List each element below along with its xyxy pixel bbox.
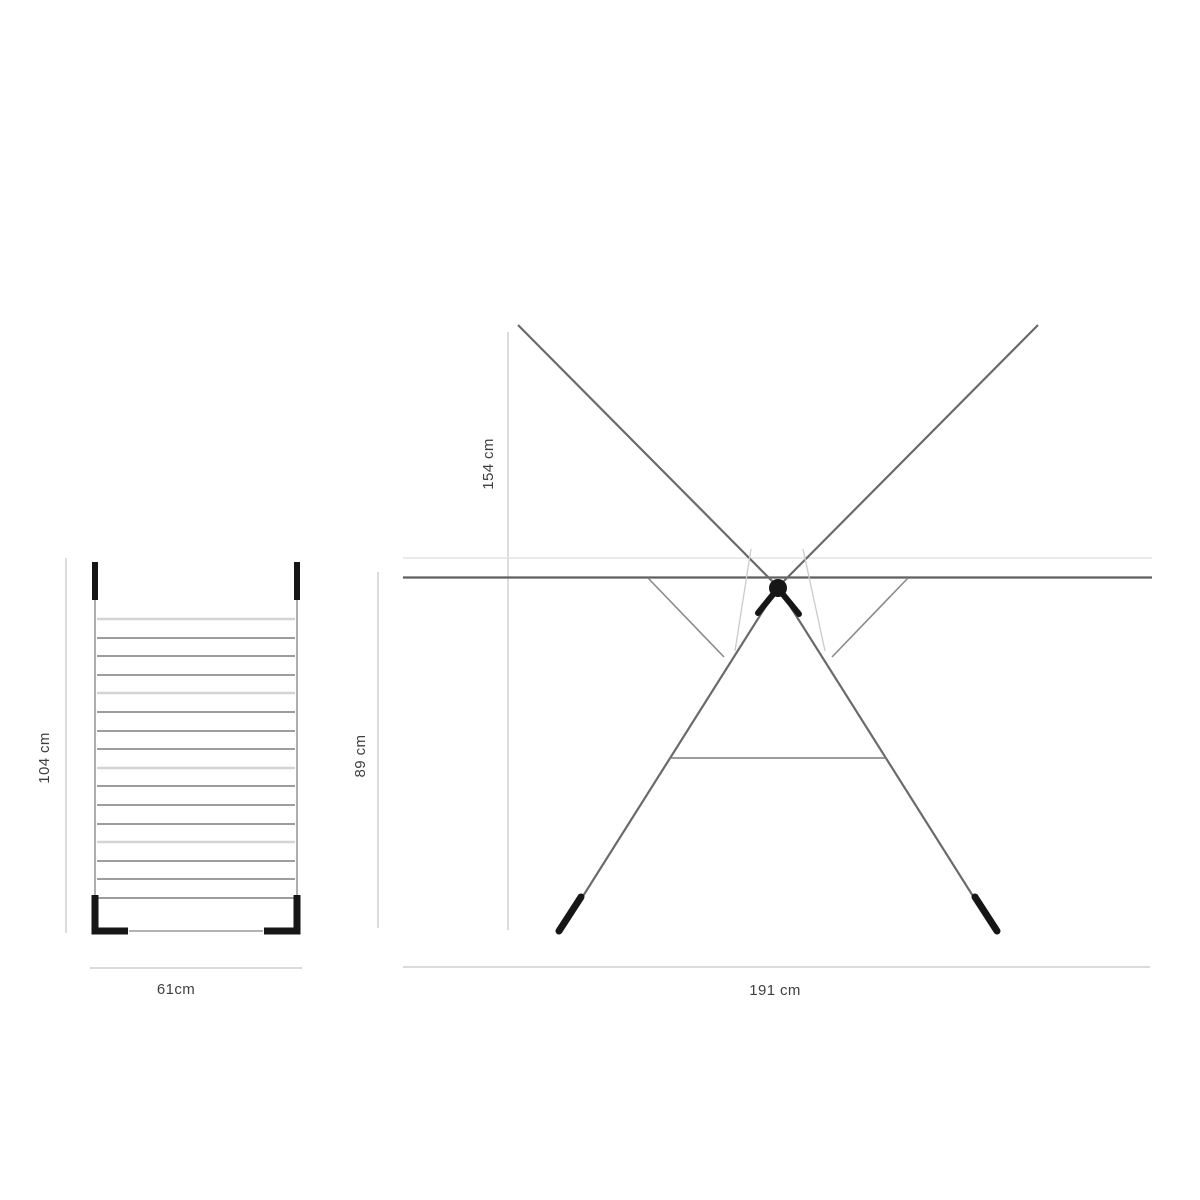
frame-height-dimension-label: 89 cm [352, 735, 369, 778]
left-foot [559, 897, 581, 931]
drying-bars [97, 619, 295, 898]
left-cord-wire [735, 549, 751, 651]
bottom-right-bracket [264, 895, 297, 931]
right-brace [832, 578, 908, 657]
left-arm [518, 325, 778, 587]
hub-pivot [769, 579, 787, 597]
right-foot [975, 897, 997, 931]
height-dimension-label: 104 cm [36, 732, 53, 784]
width-dimension-label: 61cm [157, 981, 195, 998]
open-width-dimension-label: 191 cm [749, 982, 801, 999]
front-view-group: 154 cm 89 cm [352, 325, 1152, 999]
right-cord-wire [803, 549, 825, 651]
hub-left-link [758, 592, 775, 613]
top-view-group: 104 cm [36, 558, 302, 998]
left-brace [648, 578, 724, 657]
bottom-left-bracket [95, 895, 128, 931]
left-leg [561, 587, 778, 931]
total-height-dimension-label: 154 cm [480, 438, 497, 490]
diagram-svg: 104 cm [0, 0, 1200, 1200]
right-arm [778, 325, 1038, 587]
drying-rack-dimension-diagram: 104 cm [0, 0, 1200, 1200]
hub-right-link [781, 592, 799, 614]
right-leg [778, 587, 995, 931]
